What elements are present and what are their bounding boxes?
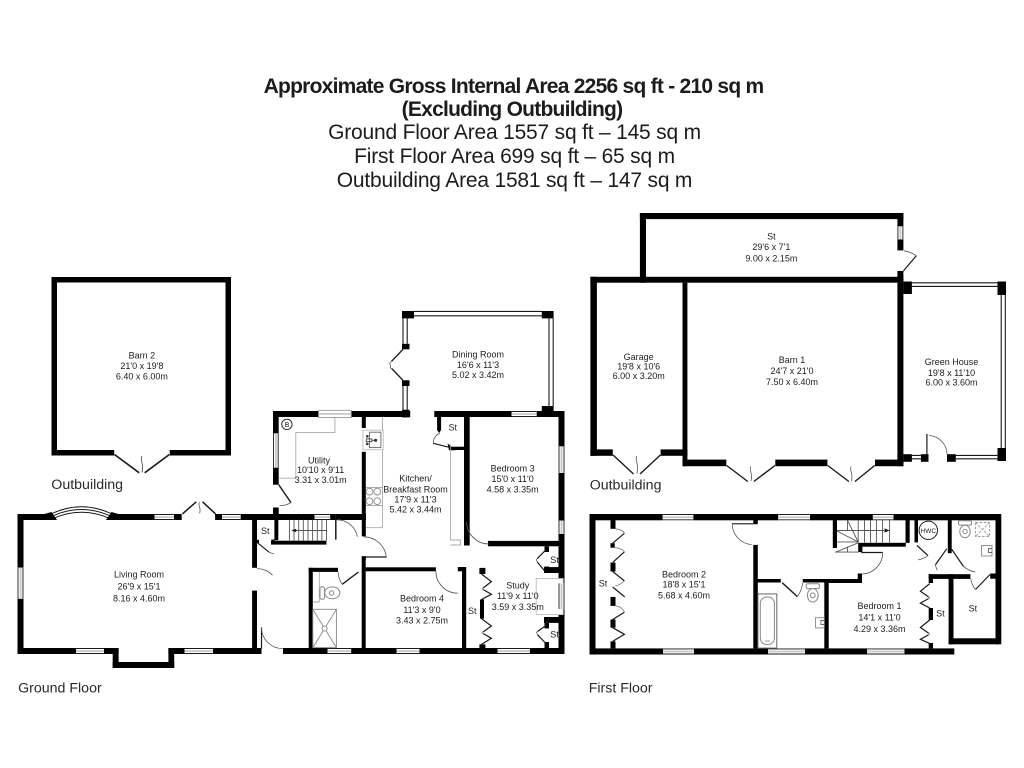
svg-text:16'6 x 11'3: 16'6 x 11'3 — [457, 360, 499, 370]
svg-text:(Excluding Outbuilding): (Excluding Outbuilding) — [402, 98, 623, 121]
svg-text:Kitchen/: Kitchen/ — [399, 473, 432, 483]
svg-text:Dining Room: Dining Room — [452, 349, 504, 359]
svg-text:Approximate Gross Internal Are: Approximate Gross Internal Area 2256 sq … — [264, 75, 764, 98]
svg-text:HWC: HWC — [921, 528, 937, 535]
svg-text:Bedroom 3: Bedroom 3 — [491, 464, 535, 474]
svg-text:7.50 x 6.40m: 7.50 x 6.40m — [766, 377, 818, 387]
svg-text:Bedroom 1: Bedroom 1 — [857, 601, 901, 611]
svg-text:19'8 x 10'6: 19'8 x 10'6 — [617, 361, 660, 371]
svg-text:St: St — [936, 608, 945, 618]
svg-text:Outbuilding: Outbuilding — [51, 477, 123, 493]
svg-text:10'10 x 9'11: 10'10 x 9'11 — [297, 465, 344, 475]
svg-text:Ground Floor Area 1557 sq ft –: Ground Floor Area 1557 sq ft – 145 sq m — [328, 121, 701, 144]
svg-text:St: St — [599, 578, 608, 588]
svg-text:St: St — [468, 606, 477, 616]
svg-text:B: B — [285, 422, 290, 429]
svg-text:Green House: Green House — [925, 357, 979, 367]
svg-text:19'8 x 11'10: 19'8 x 11'10 — [928, 368, 975, 378]
svg-text:11'3 x 9'0: 11'3 x 9'0 — [403, 605, 440, 615]
svg-text:4.29 x 3.36m: 4.29 x 3.36m — [853, 624, 905, 634]
svg-text:18'8 x 15'1: 18'8 x 15'1 — [663, 580, 706, 590]
svg-text:Living Room: Living Room — [114, 569, 164, 579]
svg-text:St: St — [969, 604, 978, 614]
svg-text:Outbuilding Area 1581 sq ft –: Outbuilding Area 1581 sq ft – 147 sq m — [337, 169, 692, 192]
svg-text:St: St — [550, 555, 559, 565]
svg-text:4.58 x 3.35m: 4.58 x 3.35m — [487, 485, 539, 495]
svg-text:17'9 x 11'3: 17'9 x 11'3 — [394, 494, 436, 504]
svg-text:Bedroom 2: Bedroom 2 — [662, 569, 706, 579]
svg-text:St: St — [550, 630, 559, 640]
svg-text:3.43 x 2.75m: 3.43 x 2.75m — [396, 616, 448, 626]
svg-text:Study: Study — [506, 581, 530, 591]
svg-text:St: St — [261, 526, 270, 536]
svg-text:Breakfast Room: Breakfast Room — [383, 485, 448, 495]
svg-text:Barn 2: Barn 2 — [129, 350, 156, 360]
svg-text:Ground Floor: Ground Floor — [18, 681, 102, 697]
svg-text:Garage: Garage — [624, 352, 654, 362]
svg-text:First Floor Area 699 sq ft – 6: First Floor Area 699 sq ft – 65 sq m — [354, 145, 675, 168]
svg-text:8.16 x 4.60m: 8.16 x 4.60m — [113, 594, 165, 604]
svg-text:29'6 x 7'1: 29'6 x 7'1 — [752, 242, 790, 252]
svg-text:6.00 x 3.20m: 6.00 x 3.20m — [613, 371, 665, 381]
svg-text:3.31 x 3.01m: 3.31 x 3.01m — [295, 475, 347, 485]
svg-text:Utility: Utility — [308, 455, 330, 465]
svg-text:15'0 x 11'0: 15'0 x 11'0 — [491, 474, 533, 484]
svg-text:Outbuilding: Outbuilding — [590, 477, 662, 493]
svg-text:24'7 x 21'0: 24'7 x 21'0 — [771, 366, 814, 376]
svg-text:6.40 x 6.00m: 6.40 x 6.00m — [116, 371, 168, 381]
svg-text:21'0 x 19'8: 21'0 x 19'8 — [120, 361, 163, 371]
svg-text:5.02 x 3.42m: 5.02 x 3.42m — [452, 370, 504, 380]
svg-text:Bedroom 4: Bedroom 4 — [400, 594, 444, 604]
svg-text:26'9 x 15'1: 26'9 x 15'1 — [118, 581, 161, 591]
svg-text:Barn 1: Barn 1 — [779, 355, 806, 365]
svg-text:St: St — [767, 232, 776, 242]
svg-text:11'9 x 11'0: 11'9 x 11'0 — [497, 591, 539, 601]
svg-text:St: St — [449, 423, 458, 433]
svg-text:6.00 x 3.60m: 6.00 x 3.60m — [925, 378, 977, 388]
svg-text:3.59 x 3.35m: 3.59 x 3.35m — [492, 602, 544, 612]
svg-text:14'1 x 11'0: 14'1 x 11'0 — [858, 613, 900, 623]
svg-text:9.00 x 2.15m: 9.00 x 2.15m — [745, 254, 797, 264]
svg-text:First Floor: First Floor — [589, 681, 653, 697]
svg-text:5.42 x 3.44m: 5.42 x 3.44m — [389, 505, 441, 515]
svg-text:5.68 x 4.60m: 5.68 x 4.60m — [658, 590, 710, 600]
